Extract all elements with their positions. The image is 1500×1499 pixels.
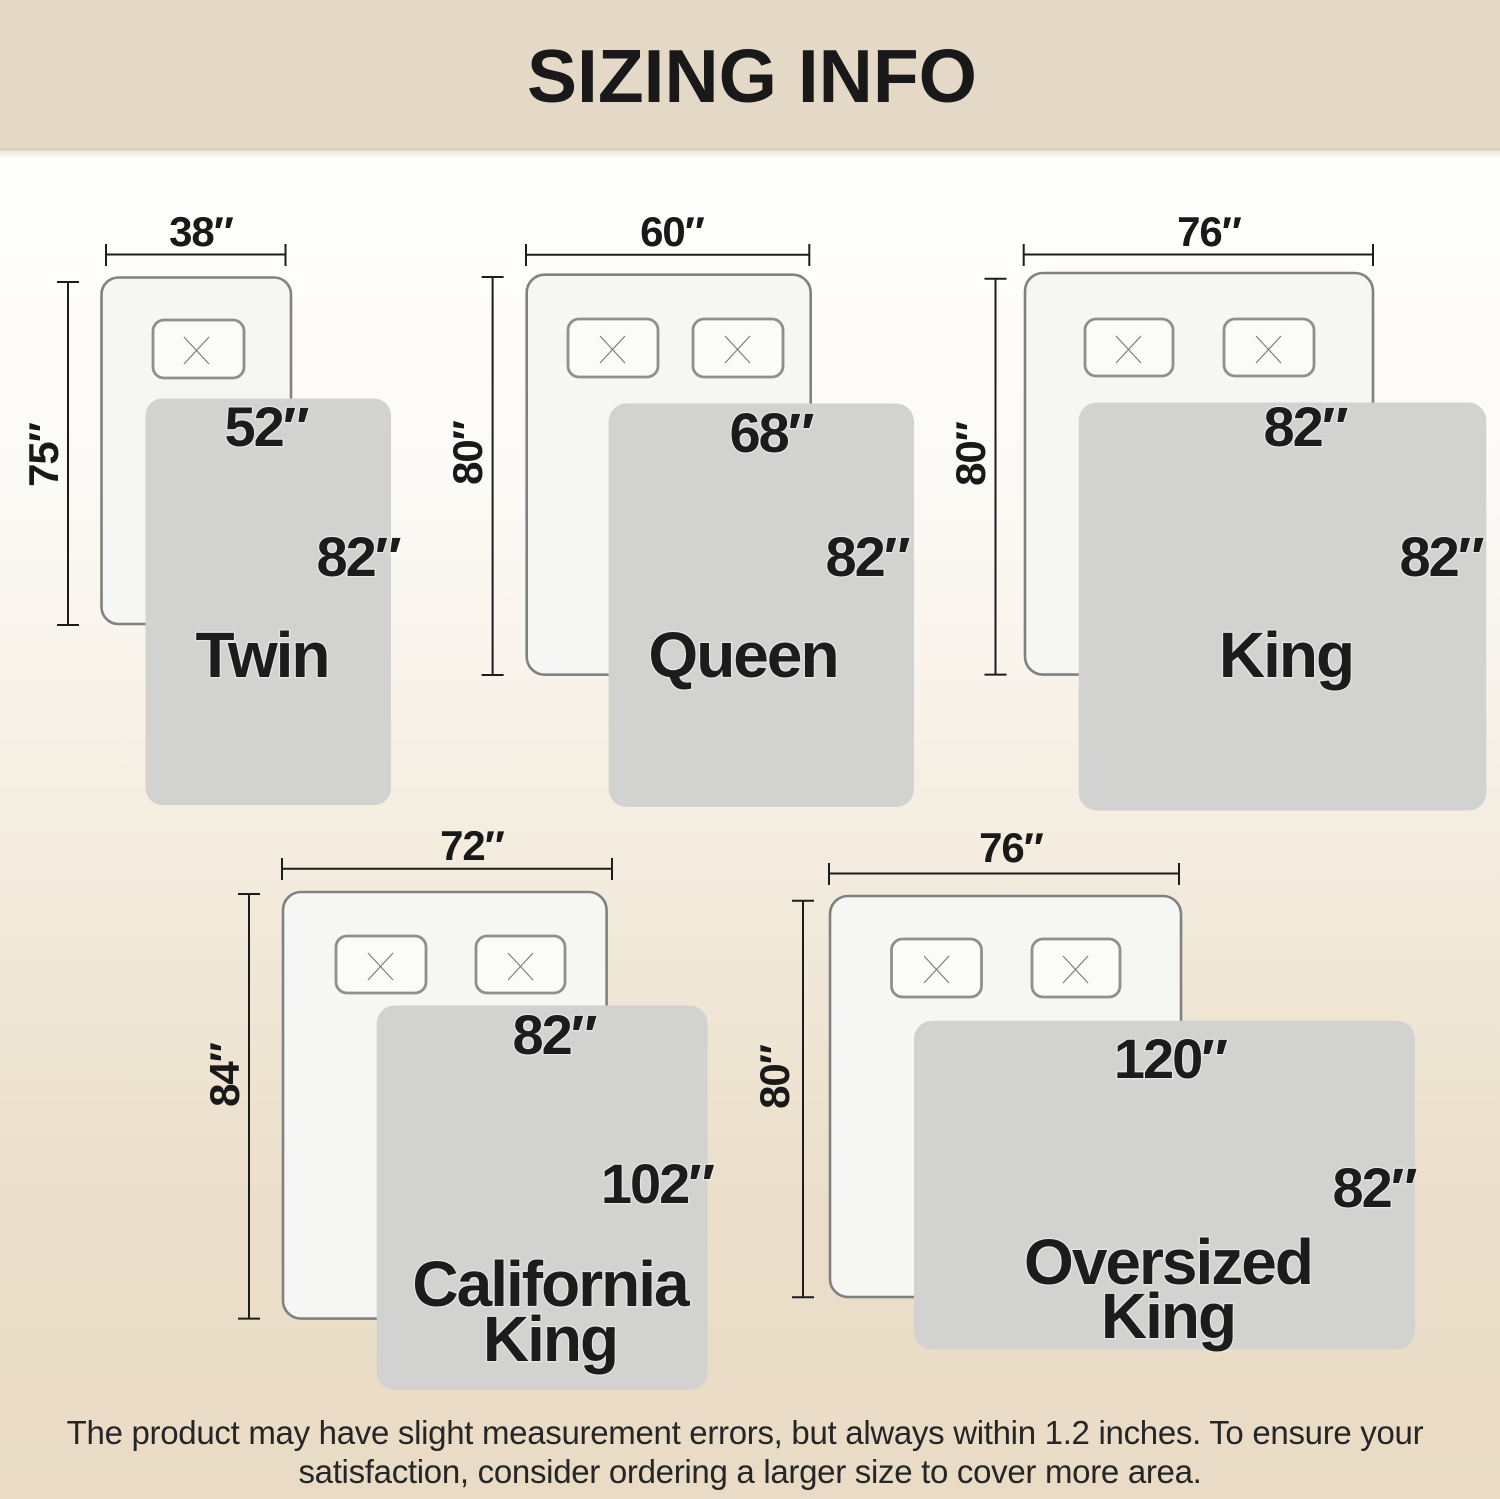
svg-text:Twin: Twin	[196, 619, 329, 691]
svg-text:Queen: Queen	[648, 619, 837, 691]
svg-text:120″: 120″	[1114, 1027, 1227, 1090]
svg-text:82″: 82″	[316, 525, 400, 588]
svg-text:52″: 52″	[224, 395, 308, 458]
svg-text:68″: 68″	[729, 401, 813, 464]
svg-text:80″: 80″	[444, 420, 491, 485]
svg-text:84″: 84″	[201, 1042, 248, 1107]
svg-text:82″: 82″	[1332, 1156, 1416, 1219]
svg-text:satisfaction, consider orderin: satisfaction, consider ordering a larger…	[298, 1453, 1201, 1490]
svg-text:King: King	[1219, 619, 1353, 691]
svg-text:SIZING INFO: SIZING INFO	[527, 34, 977, 118]
svg-text:82″: 82″	[512, 1003, 596, 1066]
svg-text:The product may have slight me: The product may have slight measurement …	[67, 1414, 1424, 1451]
svg-text:King: King	[1101, 1280, 1235, 1352]
svg-text:38″: 38″	[169, 208, 234, 255]
svg-text:82″: 82″	[1263, 395, 1347, 458]
svg-text:76″: 76″	[979, 824, 1044, 871]
svg-text:75″: 75″	[20, 422, 67, 487]
svg-text:82″: 82″	[1399, 525, 1483, 588]
svg-text:80″: 80″	[947, 421, 994, 486]
svg-text:72″: 72″	[440, 822, 505, 869]
svg-text:King: King	[483, 1303, 617, 1375]
svg-text:82″: 82″	[825, 525, 909, 588]
svg-text:76″: 76″	[1177, 208, 1242, 255]
svg-text:102″: 102″	[601, 1152, 714, 1215]
svg-text:80″: 80″	[751, 1044, 798, 1109]
svg-text:60″: 60″	[640, 208, 705, 255]
